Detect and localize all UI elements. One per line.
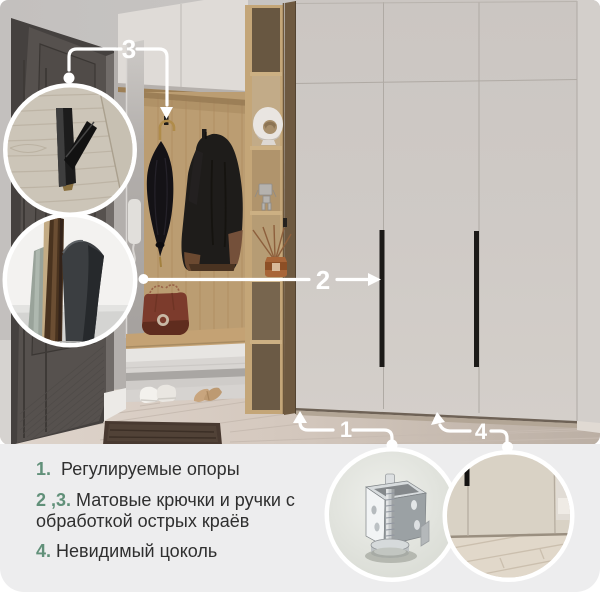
svg-text:2: 2 (316, 265, 330, 295)
svg-text:3: 3 (122, 34, 136, 64)
svg-text:1: 1 (340, 417, 352, 442)
svg-text:4: 4 (475, 419, 488, 444)
